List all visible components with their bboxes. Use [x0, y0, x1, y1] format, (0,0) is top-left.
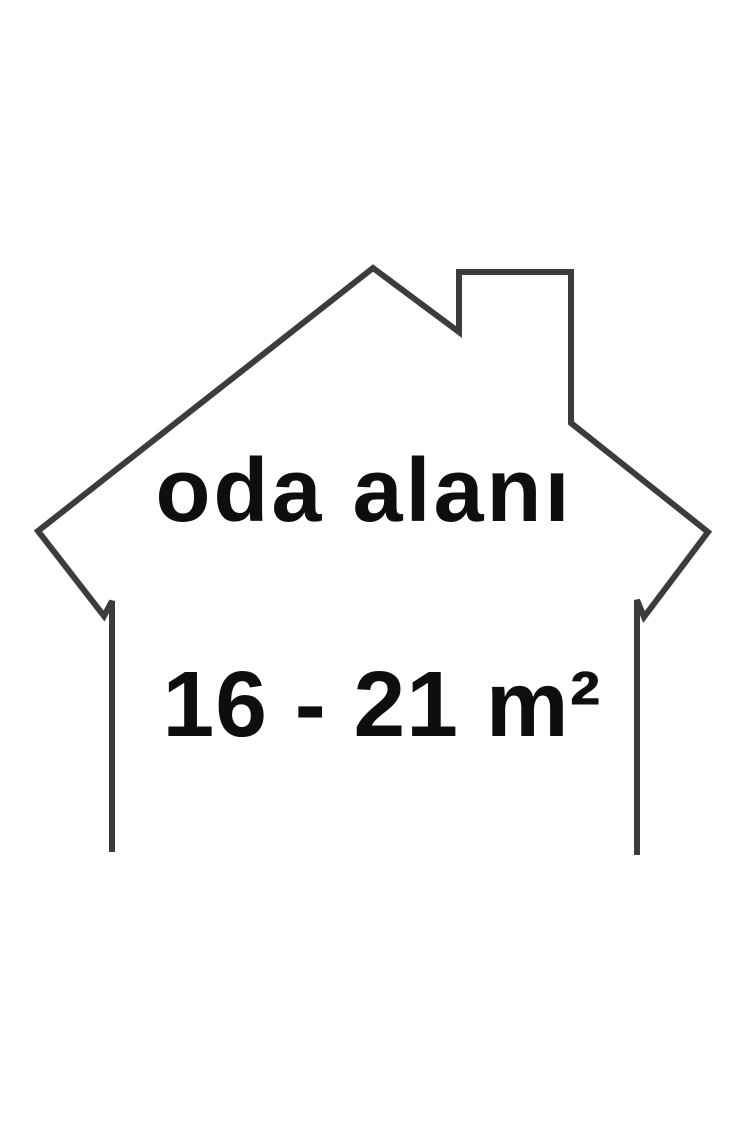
house-area-illustration: oda alanı 16 - 21 m² — [0, 0, 750, 1125]
house-outline-path — [38, 268, 708, 855]
house-outline-icon — [0, 0, 750, 1125]
room-area-label: oda alanı — [0, 446, 739, 536]
room-area-value: 16 - 21 m² — [7, 658, 750, 751]
